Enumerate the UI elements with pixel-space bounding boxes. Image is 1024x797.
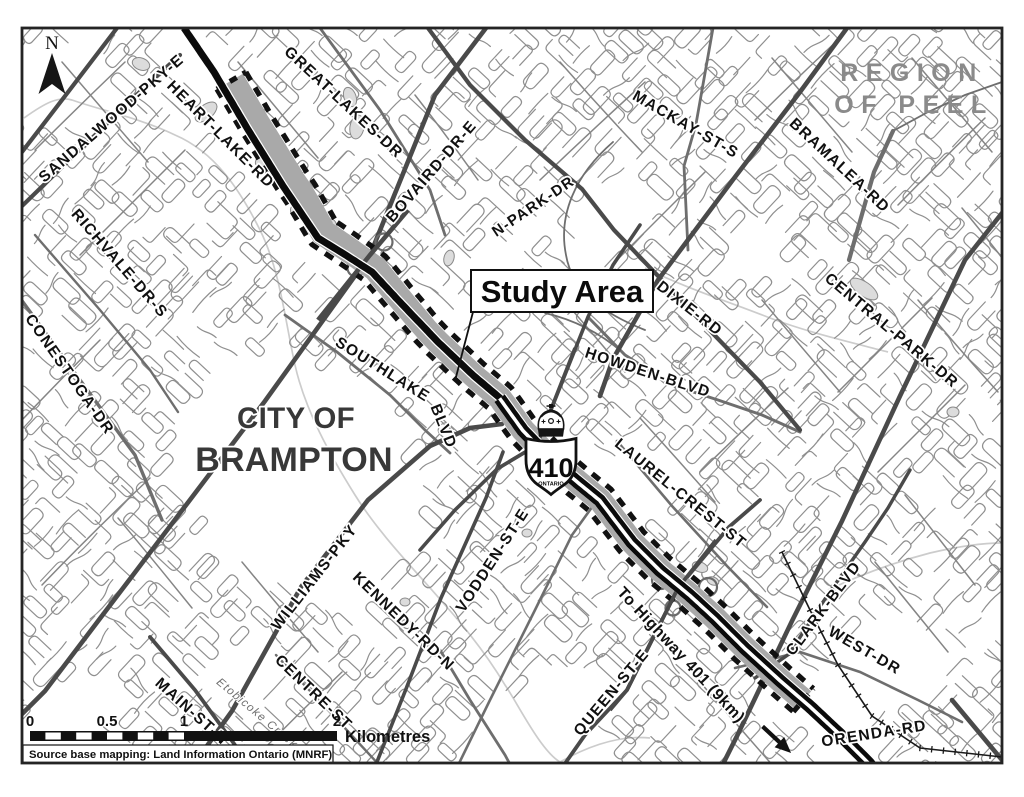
svg-text:Study Area: Study Area	[481, 274, 644, 309]
svg-text:N: N	[45, 33, 59, 54]
svg-text:0.5: 0.5	[97, 713, 118, 730]
svg-text:410: 410	[528, 453, 573, 483]
svg-text:ONTARIO: ONTARIO	[538, 482, 564, 488]
svg-text:OF PEEL: OF PEEL	[834, 91, 993, 119]
svg-text:0: 0	[26, 713, 34, 730]
svg-text:REGION: REGION	[840, 59, 984, 87]
svg-text:BRAMPTON: BRAMPTON	[195, 441, 392, 479]
svg-text:Source base mapping: Land Info: Source base mapping: Land Information On…	[29, 749, 332, 761]
svg-text:CITY OF: CITY OF	[237, 402, 355, 435]
svg-text:2: 2	[333, 713, 341, 730]
svg-text:1: 1	[180, 713, 188, 730]
svg-text:Kilometres: Kilometres	[345, 728, 430, 746]
